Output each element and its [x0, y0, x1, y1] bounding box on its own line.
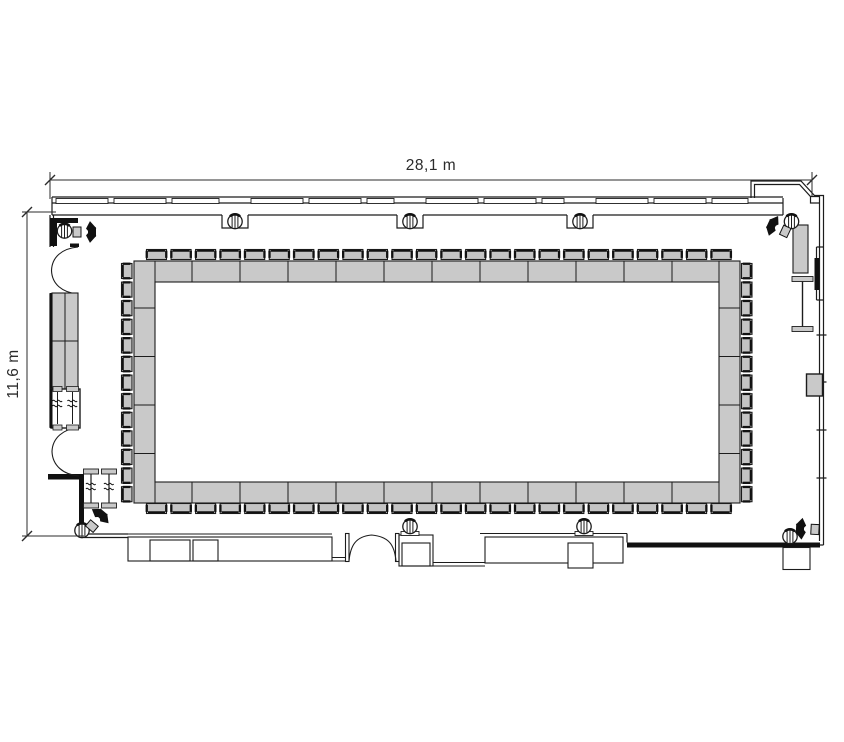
height-dimension-label: 11,6 m — [5, 349, 22, 398]
flipchart-cap — [792, 327, 813, 332]
conference-table-setup — [134, 261, 740, 503]
window-pane — [542, 199, 564, 204]
floor-plan-page: 28,1 m 11,6 m — [0, 0, 844, 742]
width-dimension-line — [50, 172, 812, 199]
door-arc-bottom-double — [349, 535, 396, 561]
window-pane — [367, 199, 394, 204]
buffet-cap — [53, 387, 62, 392]
floor-plan: 28,1 m 11,6 m — [0, 0, 844, 742]
niche-right-box — [485, 537, 623, 563]
bottom-wall-left — [84, 534, 128, 538]
niche-right-square — [568, 543, 593, 568]
column-icon — [573, 214, 587, 228]
flipchart-cap — [792, 277, 813, 282]
niche-corner-box — [783, 548, 810, 570]
standing-table-cap — [84, 469, 99, 474]
buffet-cap — [67, 425, 79, 430]
standing-table-cap — [84, 503, 99, 508]
sideboard-back-edge — [50, 293, 53, 390]
standing-table-cap — [102, 469, 117, 474]
standing-table-cap — [102, 503, 117, 508]
speaker-icon — [73, 221, 96, 243]
top-right-bay-hook — [811, 197, 820, 204]
door-jamb-left — [346, 534, 350, 562]
column-icon — [403, 214, 417, 228]
right-wall-joints — [817, 335, 827, 478]
column-icon — [783, 529, 797, 543]
window-pane — [172, 199, 219, 204]
window-pane — [309, 199, 361, 204]
buffet-cap — [53, 425, 62, 430]
right-sideboard — [793, 225, 808, 273]
speaker-icon — [795, 517, 819, 540]
niche-left-inner-b — [193, 540, 218, 561]
left-door-hinge-stub — [70, 244, 79, 248]
niche-left-box — [128, 537, 332, 561]
window-pane — [114, 199, 166, 204]
niche-connector-b — [433, 563, 485, 567]
column-icon — [577, 519, 591, 533]
column-icon — [57, 224, 71, 238]
buffet-back-edge — [50, 389, 53, 428]
door-arc-left-upper — [52, 247, 79, 294]
buffet-cap — [67, 387, 79, 392]
window-pane — [484, 199, 536, 204]
buffet-table — [51, 389, 80, 428]
bottom-left-wall-h — [48, 474, 84, 480]
wall-niches — [128, 532, 810, 570]
column-icon — [228, 214, 242, 228]
window-pane — [426, 199, 478, 204]
niche-mid-box — [399, 535, 433, 566]
column-icon — [403, 519, 417, 533]
squiggle-mark — [86, 488, 96, 490]
width-dimension-label: 28,1 m — [406, 157, 456, 174]
wall-cabinet — [807, 374, 823, 396]
door-arc-left-lower — [52, 428, 79, 477]
niche-left-inner-a — [150, 540, 190, 561]
window-pane — [251, 199, 303, 204]
squiggle-mark — [104, 483, 114, 485]
window-pane — [712, 199, 748, 204]
niche-mid-inner — [402, 543, 430, 566]
squiggle-mark — [104, 488, 114, 490]
table-inner — [155, 282, 719, 482]
squiggle-mark — [86, 483, 96, 485]
wall-screen — [815, 258, 820, 290]
niche-connector-a — [332, 558, 346, 562]
window-pane — [56, 199, 108, 204]
window-pane — [654, 199, 706, 204]
window-pane — [596, 199, 648, 204]
